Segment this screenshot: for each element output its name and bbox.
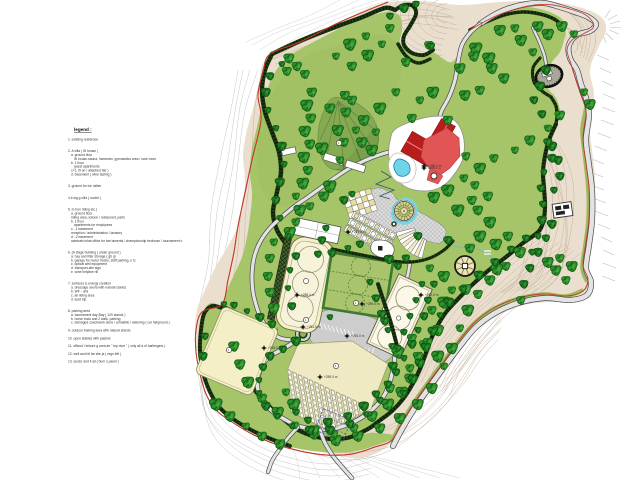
svg-text:+266.0 m: +266.0 m [428,164,442,168]
svg-text:+263.0 m: +263.0 m [268,346,282,350]
svg-text:legend :: legend : [74,127,92,132]
svg-text:c. damaged coachwork store / a: c. damaged coachwork store / armadillo /… [71,321,170,325]
svg-text:W house-sauna, hammam, gymnast: W house-sauna, hammam, gymnastics area /… [74,157,156,161]
svg-text:+262.0 m: +262.0 m [425,293,439,297]
svg-text:admirabl what office for bar l: admirabl what office for bar laments / c… [71,239,183,243]
svg-text:13. sector and it all ( burn: 13. sector and it all ( burn s panel ) [68,360,119,364]
svg-text:+260.0 m: +260.0 m [351,334,365,338]
svg-text:9. outdoor training area with: 9. outdoor training area with natural st… [68,329,131,333]
svg-text:1. existing residence: 1. existing residence [68,137,98,141]
svg-text:+259.0 m: +259.0 m [324,375,338,379]
svg-text:3. ground for ice rather: 3. ground for ice rather [68,184,102,188]
svg-text:4.b sig g villa ( rocket ): 4.b sig g villa ( rocket ) [68,196,101,200]
svg-text:d. lead trip: d. lead trip [71,297,87,301]
svg-text:+265.0 m: +265.0 m [352,230,366,234]
svg-text:+259.5 m: +259.5 m [366,302,380,306]
svg-text:11. officud / leisure g area a: 11. officud / leisure g area air " top r… [68,344,165,348]
svg-text:10. open stables with pasture: 10. open stables with pasture [68,336,111,340]
svg-text:+258.4 m: +258.4 m [301,293,315,297]
svg-text:12. well and hit far site ja (: 12. well and hit far site ja ( regn left… [68,352,121,356]
svg-text:d. basement ( wine tasting ): d. basement ( wine tasting ) [71,173,112,177]
svg-text:e. wine helpline rill: e. wine helpline rill [71,270,98,274]
svg-text:+261.5 m: +261.5 m [307,325,321,329]
